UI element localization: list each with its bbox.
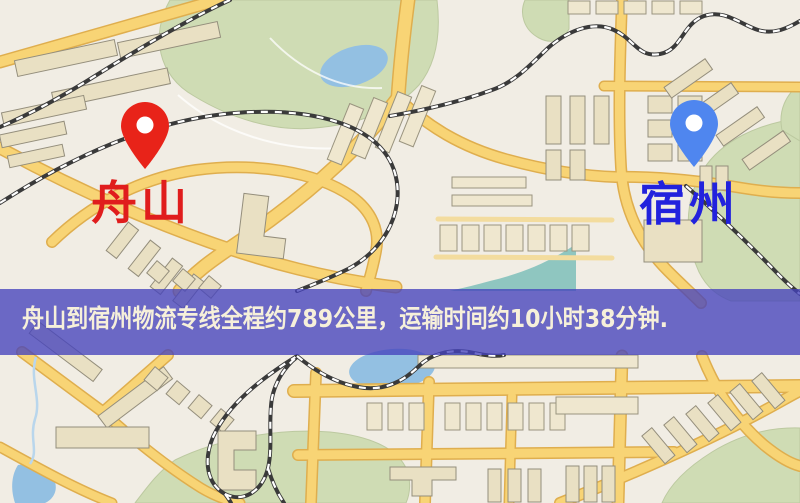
map-screenshot: 舟山 宿州 舟山到宿州物流专线全程约789公里，运输时间约10小时38分钟. (0, 0, 800, 503)
route-info-banner: 舟山到宿州物流专线全程约789公里，运输时间约10小时38分钟. (0, 289, 800, 355)
route-info-text: 舟山到宿州物流专线全程约789公里，运输时间约10小时38分钟. (22, 304, 668, 333)
destination-pin-hole (686, 115, 703, 132)
origin-label: 舟山 (91, 176, 191, 230)
map-canvas[interactable]: 舟山 宿州 舟山到宿州物流专线全程约789公里，运输时间约10小时38分钟. (0, 0, 800, 503)
origin-pin-hole (137, 117, 154, 134)
destination-label: 宿州 (639, 177, 739, 231)
